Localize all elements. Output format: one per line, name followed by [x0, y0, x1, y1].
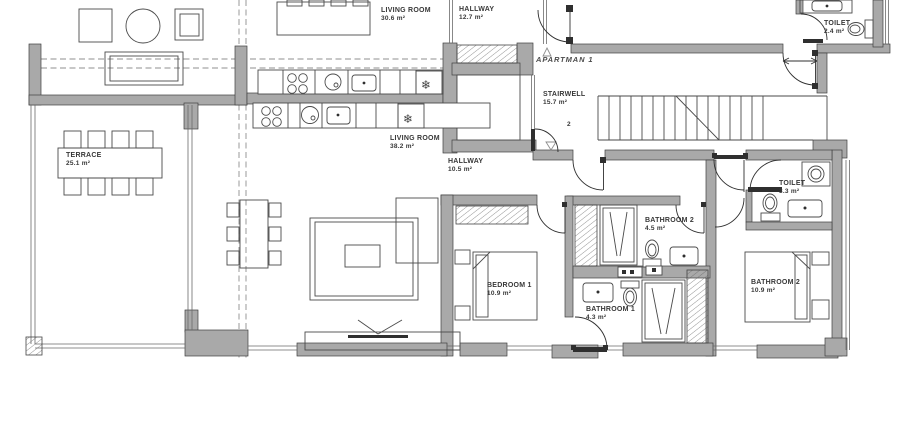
room-label-living-room-upper: LIVING ROOM 30.6 m² [381, 6, 431, 24]
stairs [598, 96, 827, 140]
tv [348, 335, 408, 338]
bedroom1-closet [456, 206, 528, 224]
sofa-lower [310, 198, 438, 300]
toilet-fixture-right [761, 194, 780, 221]
washing-machine [802, 162, 830, 186]
room-area: 4.3 m² [586, 314, 635, 322]
terrace-top-furniture [79, 9, 203, 85]
hallway-wardrobe [457, 45, 517, 63]
room-area: 4.5 m² [645, 225, 694, 233]
room-name: BATHROOM 2 [645, 216, 694, 225]
apartment-label: APARTMAN 1 [536, 55, 593, 64]
room-label-toilet-upper: TOILET 2.4 m² [824, 19, 850, 37]
room-area: 10.5 m² [448, 166, 483, 174]
laundry-closet [575, 205, 597, 266]
room-area: 12.7 m² [459, 14, 494, 22]
dining-table-upper [277, 0, 370, 35]
room-name: BATHROOM 2 [751, 278, 800, 287]
coffee-table [345, 245, 380, 267]
room-name: TOILET [779, 179, 805, 188]
room-name: STAIRWELL [543, 90, 585, 99]
room-area: 25.1 m² [66, 160, 102, 168]
room-label-hallway-lower: HALLWAY 10.5 m² [448, 157, 483, 175]
laundry-boxes [618, 266, 662, 277]
nightstand [455, 306, 470, 320]
room-name: BEDROOM 1 [487, 281, 532, 290]
floor-plan-drawing: ❄ ❄ [0, 0, 919, 436]
room-area: 3.3 m² [779, 188, 805, 196]
sink-bathroom1 [583, 283, 613, 302]
fridge-icon: ❄ [421, 78, 431, 92]
shower-2 [600, 205, 637, 265]
room-name: BATHROOM 1 [586, 305, 635, 314]
shower-1 [642, 280, 685, 342]
room-area: 10.9 m² [751, 287, 800, 295]
room-name: HALLWAY [459, 5, 494, 14]
nightstand [812, 252, 829, 265]
room-label-toilet-right: TOILET 3.3 m² [779, 179, 805, 197]
room-label-bedroom-2: BATHROOM 2 10.9 m² [751, 278, 800, 296]
column [26, 337, 42, 355]
bathroom1-closet [687, 270, 708, 343]
room-label-hallway-upper: HALLWAY 12.7 m² [459, 5, 494, 23]
toilet-fixture-upper [848, 20, 873, 38]
sofa [105, 52, 183, 85]
room-area: 15.7 m² [543, 99, 585, 107]
stair-level-number: 2 [567, 121, 571, 128]
sink-bathroom2 [670, 247, 698, 265]
toilet-fixture-bathroom1 [621, 281, 639, 306]
kitchen-upper: ❄ [258, 70, 443, 94]
room-label-bathroom-2: BATHROOM 2 4.5 m² [645, 216, 694, 234]
room-name: LIVING ROOM [390, 134, 440, 143]
level-down-icon [546, 142, 556, 150]
room-name: HALLWAY [448, 157, 483, 166]
room-label-bathroom-1: BATHROOM 1 4.3 m² [586, 305, 635, 323]
nightstand [812, 300, 829, 319]
toilet-fixture-bathroom2 [643, 240, 661, 267]
room-area: 38.2 m² [390, 143, 440, 151]
room-label-bedroom-1: BEDROOM 1 10.9 m² [487, 281, 532, 299]
room-label-terrace: TERRACE 25.1 m² [66, 151, 102, 169]
room-area: 10.9 m² [487, 290, 532, 298]
room-label-stairwell: STAIRWELL 15.7 m² [543, 90, 585, 108]
fridge-icon: ❄ [403, 112, 413, 126]
room-name: LIVING ROOM [381, 6, 431, 15]
room-area: 30.6 m² [381, 15, 431, 23]
floor-plan-page: ❄ ❄ [0, 0, 919, 436]
room-area: 2.4 m² [824, 28, 850, 36]
sink-upper-toilet [800, 0, 852, 13]
room-name: TERRACE [66, 151, 102, 160]
nightstand [455, 250, 470, 264]
sink-right-toilet [788, 200, 822, 217]
room-name: TOILET [824, 19, 850, 28]
kitchen-lower: ❄ [253, 103, 490, 128]
dining-table-lower [227, 200, 281, 268]
room-label-living-room-lower: LIVING ROOM 38.2 m² [390, 134, 440, 152]
